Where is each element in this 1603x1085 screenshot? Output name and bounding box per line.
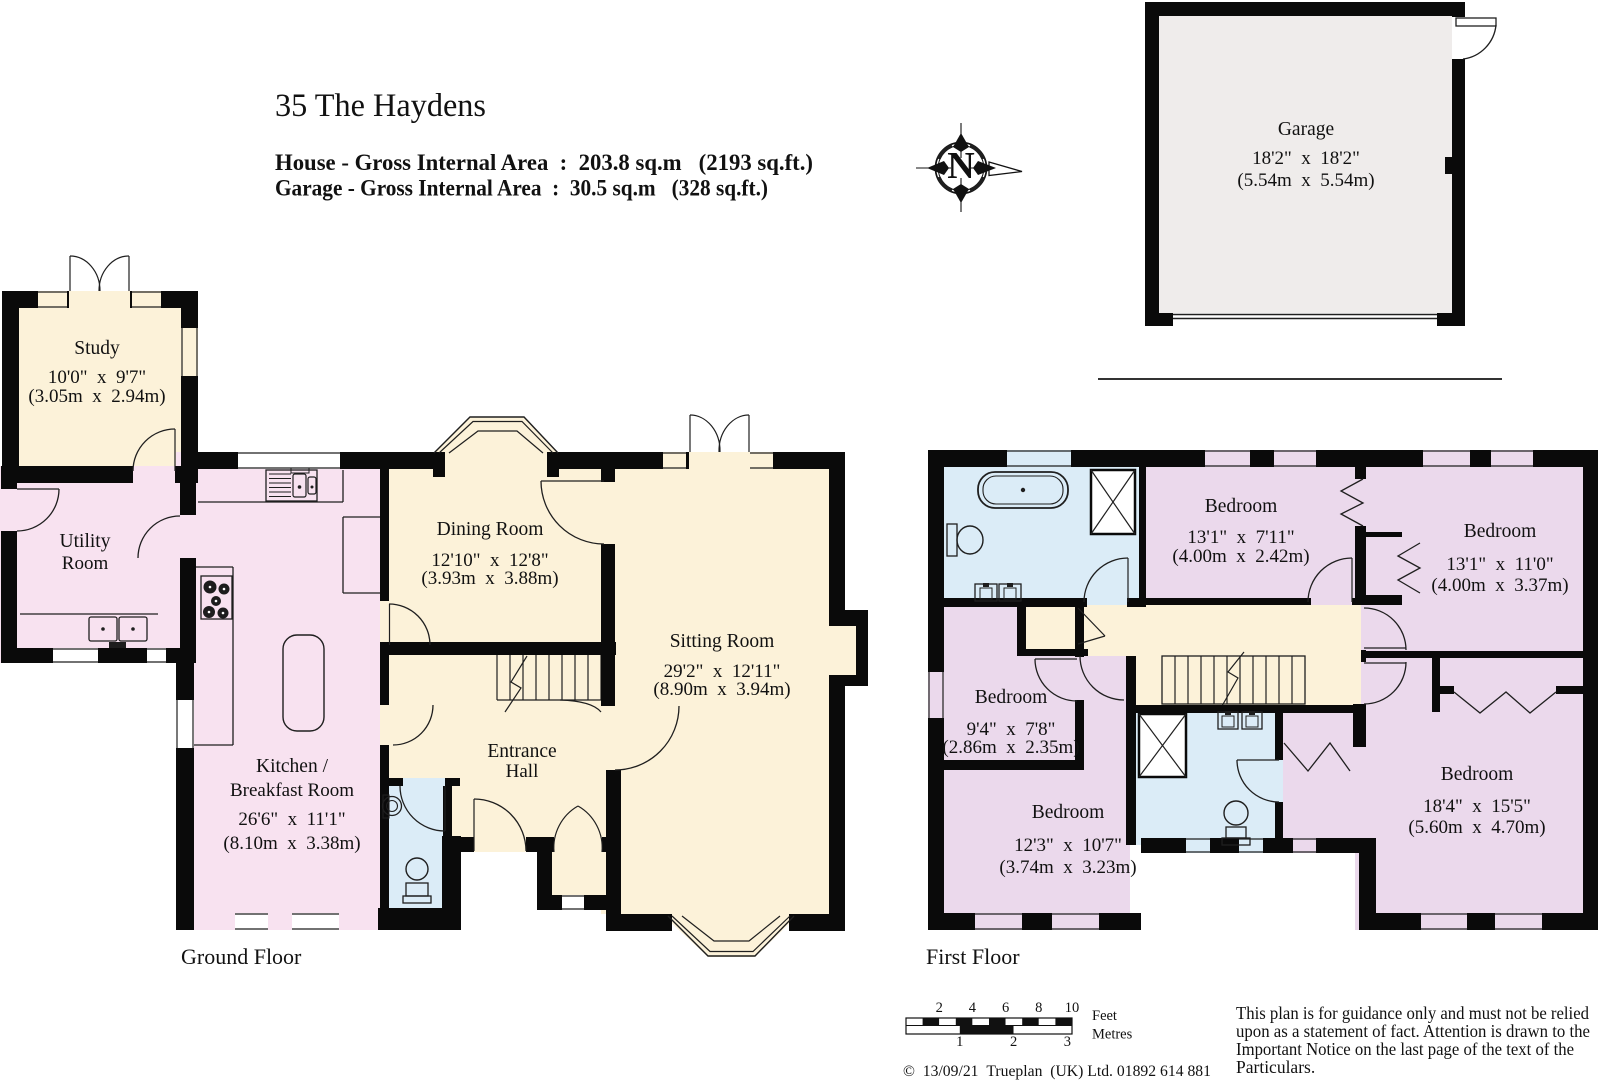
svg-text:13'1" x 11'0": 13'1" x 11'0" [1446, 554, 1553, 575]
svg-text:Bedroom: Bedroom [975, 687, 1048, 708]
svg-text:Bedroom: Bedroom [1205, 496, 1278, 517]
svg-text:(2.86m x 2.35m): (2.86m x 2.35m) [942, 737, 1079, 758]
svg-text:Room: Room [62, 553, 109, 574]
svg-text:Ground Floor: Ground Floor [181, 944, 302, 969]
svg-text:2: 2 [936, 1000, 943, 1016]
svg-text:(8.10m x 3.38m): (8.10m x 3.38m) [223, 833, 360, 854]
svg-text:This plan is for guidance only: This plan is for guidance only and must … [1236, 1003, 1589, 1023]
svg-text:Feet: Feet [1092, 1008, 1117, 1024]
svg-text:1: 1 [956, 1034, 963, 1050]
svg-text:Dining Room: Dining Room [437, 519, 544, 540]
svg-text:18'4" x 15'5": 18'4" x 15'5" [1423, 796, 1531, 817]
svg-text:Garage: Garage [1278, 119, 1334, 140]
svg-text:Bedroom: Bedroom [1441, 764, 1514, 785]
svg-text:Utility: Utility [60, 531, 111, 552]
svg-text:Important Notice on the last p: Important Notice on the last page of the… [1236, 1039, 1574, 1059]
svg-text:4: 4 [969, 1000, 977, 1016]
svg-text:10'0" x 9'7": 10'0" x 9'7" [48, 367, 146, 388]
svg-text:(5.54m x 5.54m): (5.54m x 5.54m) [1237, 170, 1374, 191]
svg-text:Garage - Gross Internal Area: Garage - Gross Internal Area : 30.5 sq.m… [275, 176, 768, 201]
svg-text:© 13/09/21 Trueplan (UK) Lt: © 13/09/21 Trueplan (UK) Ltd. 01892 614 … [903, 1063, 1211, 1080]
svg-text:26'6" x 11'1": 26'6" x 11'1" [238, 809, 345, 830]
svg-text:(3.93m x 3.88m): (3.93m x 3.88m) [421, 568, 558, 589]
svg-text:(4.00m x 3.37m): (4.00m x 3.37m) [1431, 575, 1568, 596]
svg-text:(4.00m x 2.42m): (4.00m x 2.42m) [1172, 546, 1309, 567]
svg-text:6: 6 [1002, 1000, 1009, 1016]
svg-text:(3.05m x 2.94m): (3.05m x 2.94m) [28, 386, 165, 407]
svg-text:Entrance: Entrance [487, 741, 556, 762]
svg-text:12'3" x 10'7": 12'3" x 10'7" [1014, 835, 1122, 856]
svg-text:upon as a statement of fact. A: upon as a statement of fact. Attention i… [1236, 1021, 1590, 1041]
svg-text:N: N [947, 145, 974, 187]
svg-text:18'2" x 18'2": 18'2" x 18'2" [1252, 148, 1360, 169]
svg-text:13'1" x 7'11": 13'1" x 7'11" [1187, 527, 1294, 548]
svg-text:3: 3 [1064, 1034, 1071, 1050]
svg-text:Metres: Metres [1092, 1027, 1133, 1043]
svg-text:10: 10 [1065, 1000, 1080, 1016]
svg-text:Study: Study [74, 338, 120, 359]
svg-text:Breakfast Room: Breakfast Room [230, 780, 354, 801]
svg-text:Sitting Room: Sitting Room [670, 631, 775, 652]
svg-text:2: 2 [1010, 1034, 1017, 1050]
svg-text:Hall: Hall [506, 761, 539, 782]
svg-text:8: 8 [1035, 1000, 1042, 1016]
svg-text:(3.74m x 3.23m): (3.74m x 3.23m) [999, 857, 1136, 878]
svg-text:(8.90m x 3.94m): (8.90m x 3.94m) [653, 679, 790, 700]
svg-text:Particulars.: Particulars. [1236, 1057, 1315, 1077]
svg-text:Bedroom: Bedroom [1032, 802, 1105, 823]
svg-text:(5.60m x 4.70m): (5.60m x 4.70m) [1408, 817, 1545, 838]
svg-text:35 The Haydens: 35 The Haydens [275, 88, 486, 124]
svg-text:First Floor: First Floor [926, 944, 1020, 969]
svg-text:Kitchen /: Kitchen / [256, 756, 329, 777]
svg-text:Bedroom: Bedroom [1464, 521, 1537, 542]
svg-text:House - Gross Internal Area :: House - Gross Internal Area : 203.8 sq.m… [275, 150, 813, 175]
